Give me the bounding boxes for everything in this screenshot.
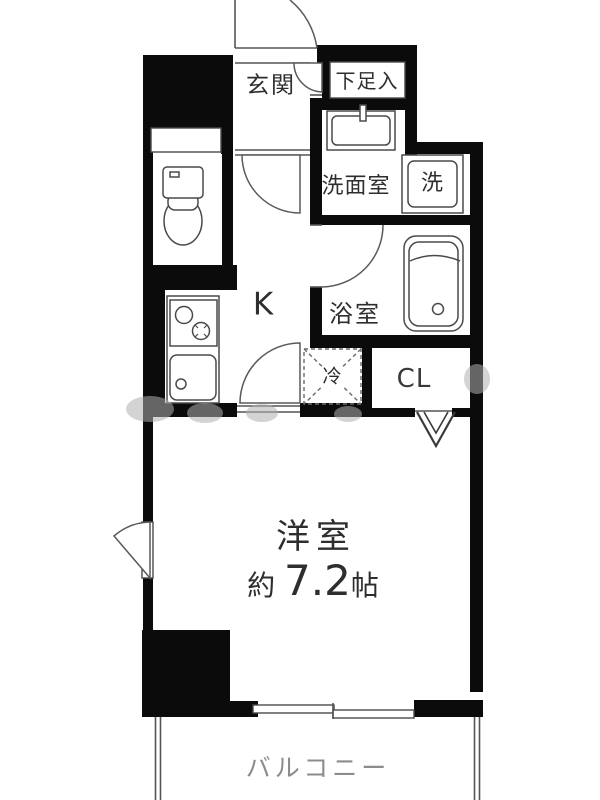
door-swing-icon bbox=[240, 343, 300, 403]
label-washer: 洗 bbox=[421, 173, 443, 195]
label-main-room: 洋室 bbox=[276, 520, 356, 554]
washbasin-icon bbox=[327, 105, 395, 150]
label-closet: CL bbox=[397, 366, 432, 392]
toilet-shelf bbox=[151, 128, 221, 152]
label-bathroom: 浴室 bbox=[329, 302, 381, 326]
wall-room-top-right bbox=[452, 408, 483, 417]
label-balcony: バルコニー bbox=[246, 756, 391, 781]
door-swing-icon bbox=[322, 225, 383, 287]
wall-pillar-bottom-left bbox=[142, 630, 230, 717]
wall-bottom-right bbox=[414, 700, 483, 717]
toilet-flush-handle bbox=[170, 172, 179, 177]
label-fridge: 冷 bbox=[320, 367, 343, 388]
label-genkan: 玄関 bbox=[246, 75, 296, 98]
bathtub-drain bbox=[433, 304, 444, 315]
sliding-door-icon bbox=[253, 705, 334, 713]
sink-drain bbox=[176, 379, 186, 389]
bathtub-icon bbox=[404, 236, 463, 331]
folding-door-icon bbox=[417, 412, 455, 446]
door-swing-icon bbox=[294, 63, 322, 92]
wall-right bbox=[470, 154, 483, 692]
kitchen-counter bbox=[167, 296, 219, 403]
wall-left-room-lower bbox=[143, 578, 153, 630]
wall bbox=[221, 128, 233, 154]
door-swing-icon bbox=[290, 0, 317, 48]
label-size-unit: 帖 bbox=[351, 569, 379, 602]
sliding-door-icon bbox=[333, 710, 414, 718]
wall-left-room-upper bbox=[143, 417, 153, 523]
label-kitchen: K bbox=[253, 290, 273, 321]
burner bbox=[176, 307, 193, 324]
folding-door-outer bbox=[417, 412, 455, 446]
wall bbox=[143, 128, 151, 154]
label-washroom: 洗面室 bbox=[321, 176, 390, 198]
wall-toilet-bottom bbox=[143, 265, 237, 290]
sink-icon bbox=[170, 355, 216, 400]
wall-hall-washroom bbox=[310, 98, 322, 225]
label-shoe-box: 下足入 bbox=[336, 71, 399, 91]
wall-pillar-top-left bbox=[143, 55, 233, 128]
floor-plan: 玄関 下足入 洗面室 洗 浴室 K 冷 CL 洋室 約 7.2帖 バルコニー bbox=[0, 0, 600, 800]
wall-bathroom-top bbox=[310, 215, 483, 225]
bathtub-inner bbox=[409, 242, 458, 326]
stove-icon bbox=[170, 300, 217, 346]
toilet-icon bbox=[163, 167, 203, 245]
wall-left-upper bbox=[143, 152, 153, 265]
label-size-prefix: 約 bbox=[247, 569, 275, 602]
wall-room-top-under-closet bbox=[362, 408, 415, 417]
label-size-value: 7.2 bbox=[284, 556, 351, 605]
floor-plan-drawing bbox=[0, 0, 600, 800]
wall-bathroom-bottom bbox=[310, 335, 483, 348]
wall-toilet-right bbox=[222, 152, 233, 265]
wall-kitchen-left bbox=[143, 290, 165, 403]
door-swing-icon bbox=[242, 155, 300, 213]
washbasin-tap bbox=[360, 105, 366, 121]
toilet-tank bbox=[163, 167, 203, 198]
wall-top-right-horizontal bbox=[417, 142, 483, 154]
casement-window-swing bbox=[114, 522, 150, 578]
label-room-size: 約 7.2帖 bbox=[247, 560, 379, 602]
wall-fridge-closet-divider bbox=[362, 348, 372, 408]
